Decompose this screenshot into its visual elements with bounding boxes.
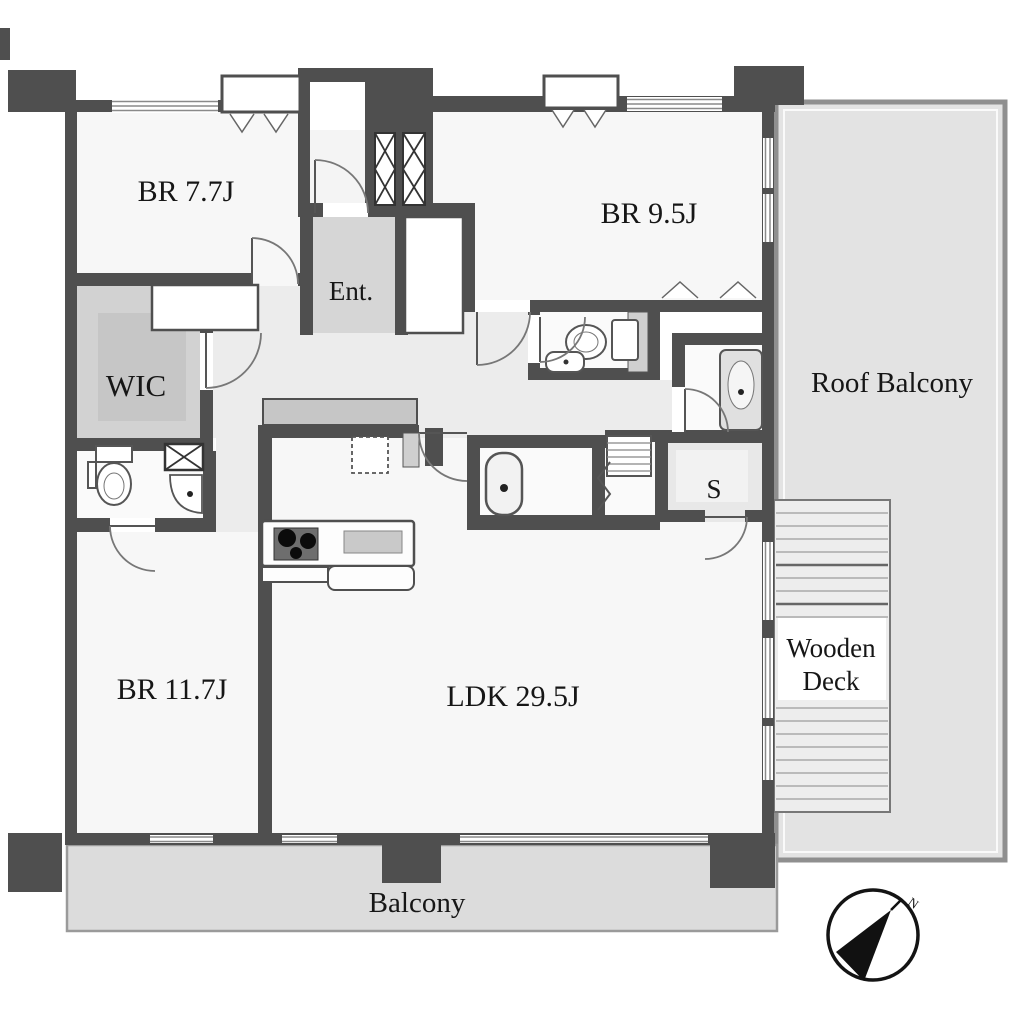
refrigerator-space [352,437,388,473]
window-br95-top [627,97,722,111]
label-wooden-deck-line2: Deck [803,666,860,696]
window-br77-top [112,99,218,113]
closet-br95 [544,76,618,108]
label-br-117j: BR 11.7J [117,673,228,706]
label-wic: WIC [106,368,166,403]
label-balcony: Balcony [369,887,466,919]
label-entrance: Ent. [329,276,373,306]
label-br-95j: BR 9.5J [601,197,698,230]
label-ldk: LDK 29.5J [446,680,580,713]
window-ldk-right [763,542,773,780]
compass-icon: N [828,890,922,981]
entrance-cabinet [405,217,463,333]
kitchen-sink [344,531,402,553]
bathtub-icon [486,453,522,515]
label-storage: S [706,474,721,504]
label-wooden-deck-line1: Wooden [786,633,876,663]
kitchen-panel [403,433,419,467]
floor-plan-page: BR 7.7J BR 9.5J Ent. WIC Roof Balcony S … [0,0,1024,1024]
kitchen-counter-stub [262,567,328,582]
floor-plan-drawing: BR 7.7J BR 9.5J Ent. WIC Roof Balcony S … [0,0,1024,1024]
kitchen-counter-lower [328,566,414,590]
closet-wic-shelf [152,285,258,330]
porch-floor [310,130,366,205]
closet-br77 [222,76,300,112]
washer-space-icon [607,436,651,476]
label-br-77j: BR 7.7J [138,175,235,208]
label-roof-balcony: Roof Balcony [811,367,973,399]
room-entrance-floor [310,203,398,333]
kitchen-hanging-counter [263,399,417,425]
